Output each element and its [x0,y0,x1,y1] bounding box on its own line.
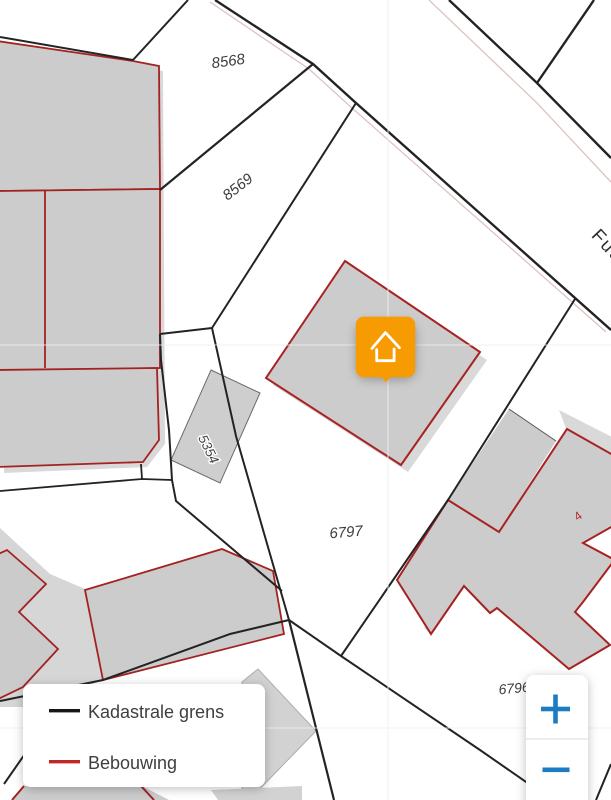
svg-text:Bebouwing: Bebouwing [88,753,177,773]
svg-text:Kadastrale grens: Kadastrale grens [88,702,224,722]
svg-text:6796: 6796 [498,679,531,698]
svg-text:6797: 6797 [329,523,364,543]
